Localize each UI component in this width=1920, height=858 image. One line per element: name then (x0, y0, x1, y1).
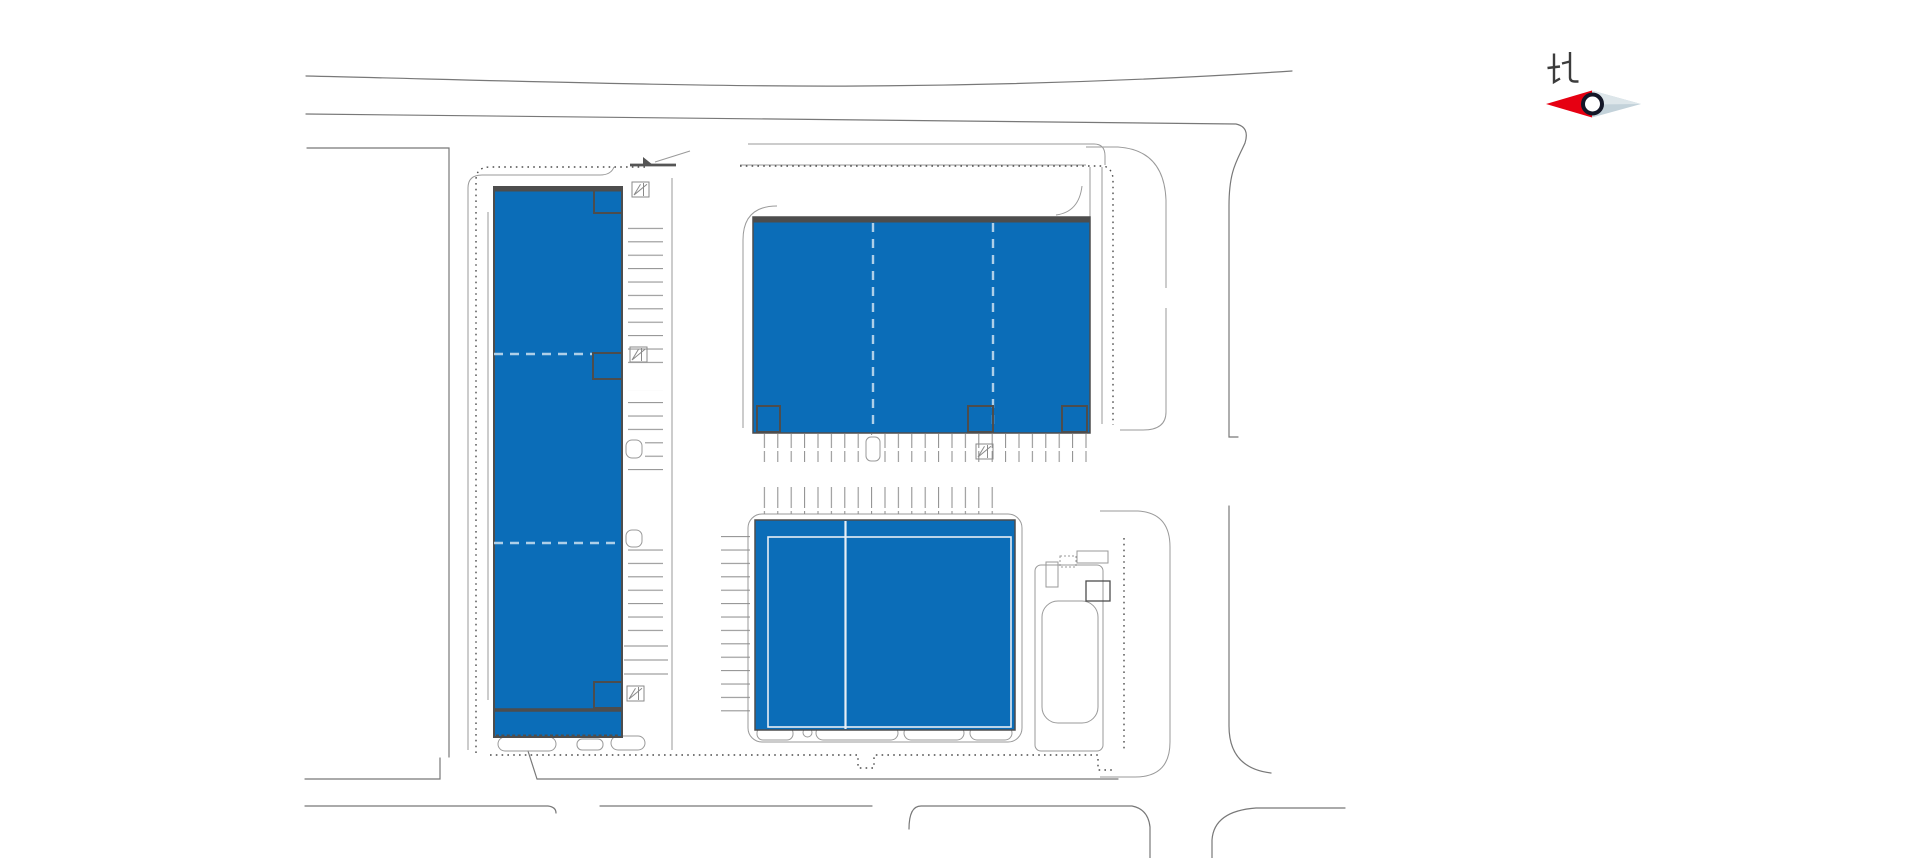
south-property-line (490, 755, 1112, 770)
entrance-leader-line (655, 151, 690, 162)
compass-hub (1583, 95, 1602, 114)
west-building[interactable] (494, 187, 622, 737)
east-boundary-mid (1120, 308, 1166, 430)
north-kanji-strokes (1548, 52, 1579, 82)
south-road-north-edge-west (305, 758, 440, 779)
southeast-dock-stalls (718, 532, 750, 716)
yard-structure-1 (1046, 562, 1058, 587)
entrance-marker (630, 151, 690, 165)
south-entrance-gate-line (528, 751, 537, 779)
entrance-arrow-icon (643, 157, 653, 165)
north-island-top (748, 144, 1105, 165)
compass (1546, 52, 1641, 118)
southeast-building[interactable] (755, 520, 1015, 730)
west-parking-island-2 (626, 530, 642, 547)
west-frontage-curb-1 (498, 737, 556, 751)
west-parking-row-4 (624, 646, 668, 674)
west-parking-row-2 (628, 390, 668, 478)
south-road-south-edge-corner (909, 806, 1150, 858)
west-block-outline (307, 148, 449, 757)
south-road-south-edge-west (305, 806, 556, 813)
yard-structure-4 (1086, 581, 1110, 601)
north-road-upper-edge (306, 71, 1292, 86)
stair-icon (627, 686, 644, 701)
west-parking-row-1 (628, 216, 668, 369)
yard-inner-outline (1042, 601, 1098, 723)
northeast-dock-stalls (758, 434, 1090, 462)
stair-icon (632, 182, 649, 197)
southeast-yard (1035, 551, 1110, 751)
east-boundary-north (1086, 147, 1166, 288)
east-road-south-segment (1229, 506, 1271, 773)
site-plan-drawing (0, 0, 1920, 858)
yard-structure-3 (1077, 551, 1108, 563)
central-parking-row (762, 487, 1002, 514)
northeast-building[interactable] (753, 217, 1090, 433)
site-plan-page: 北 (0, 0, 1920, 858)
southeast-intersection-corner (1212, 808, 1345, 858)
southeast-parcel-curb (1100, 511, 1170, 777)
west-frontage-curb-3 (611, 736, 645, 750)
west-frontage-curb-2 (577, 739, 603, 750)
northeast-site-corner-curb (1056, 186, 1082, 215)
west-parking-row-3 (628, 548, 668, 634)
